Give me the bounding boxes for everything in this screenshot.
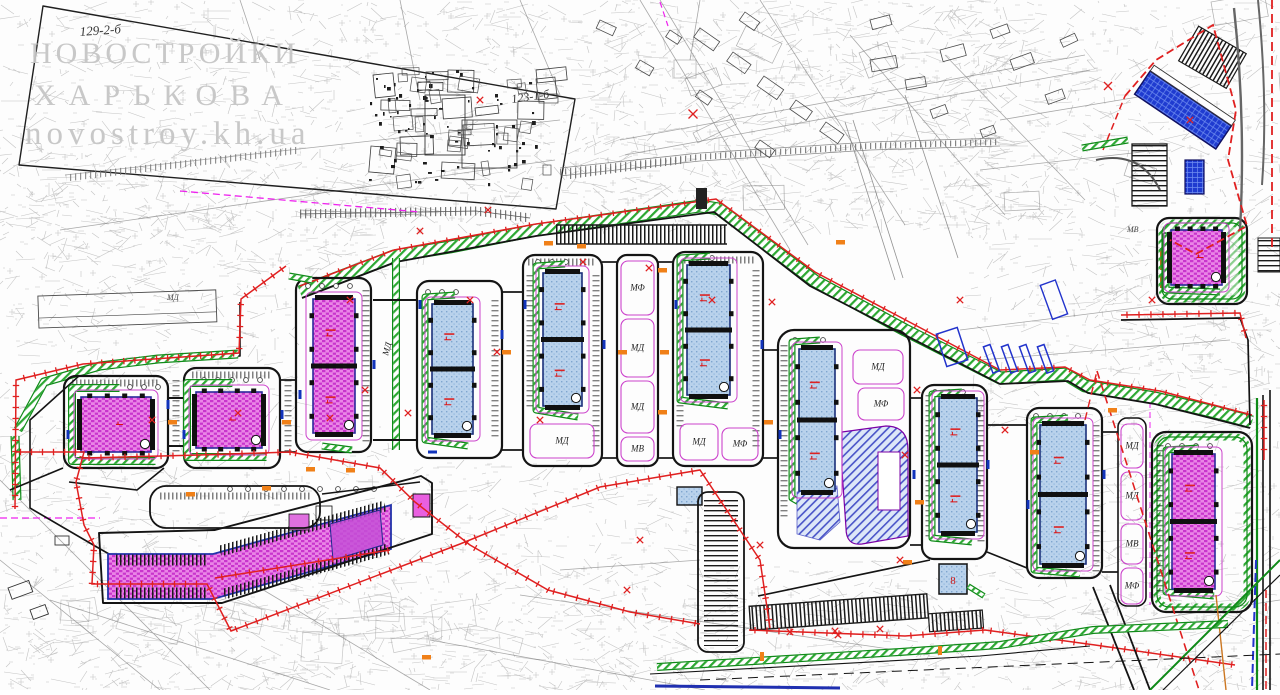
svg-text:МД: МД — [554, 436, 569, 446]
svg-text:НОВОСТРОЙКИ: НОВОСТРОЙКИ — [30, 37, 300, 70]
svg-text:МФ: МФ — [873, 399, 889, 409]
svg-text:МД: МД — [1124, 441, 1139, 451]
svg-text:МФ: МФ — [732, 439, 748, 449]
svg-text:МФ: МФ — [629, 283, 645, 293]
svg-text:МД: МД — [870, 362, 885, 372]
svg-text:novostroy.kh.ua: novostroy.kh.ua — [25, 116, 311, 152]
svg-text:ХАРЬКОВА: ХАРЬКОВА — [34, 79, 296, 112]
svg-text:МВ: МВ — [1126, 225, 1139, 234]
svg-text:МД: МД — [630, 402, 645, 412]
svg-text:МД: МД — [691, 437, 706, 447]
svg-text:МД: МД — [630, 343, 645, 353]
svg-text:МВ: МВ — [1125, 539, 1139, 549]
svg-text:МФ: МФ — [1124, 581, 1140, 591]
svg-text:8: 8 — [950, 575, 956, 587]
svg-text:МД: МД — [166, 293, 180, 302]
svg-text:МВ: МВ — [630, 444, 644, 454]
